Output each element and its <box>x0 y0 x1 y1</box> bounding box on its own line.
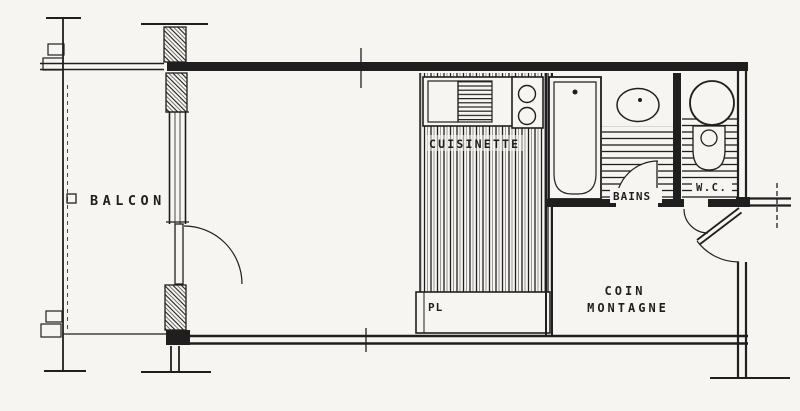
bathtub <box>549 77 601 199</box>
wall-pillar <box>164 27 186 62</box>
kitchenette: CUISINETTE PL <box>416 73 553 333</box>
washbasin <box>617 89 659 122</box>
washbasin-drain <box>638 98 642 102</box>
floor-plan-sheet: BALCON <box>0 0 800 411</box>
balcony-label: BALCON <box>90 193 166 209</box>
toilet <box>693 126 725 170</box>
bathroom-south-wall <box>545 199 616 207</box>
mountain-corner-label-line1: COIN <box>605 284 646 298</box>
wall-pillar <box>165 285 186 330</box>
water-heater <box>690 81 734 125</box>
floor-plan-canvas: BALCON <box>0 0 800 411</box>
closet-label: PL <box>428 301 443 314</box>
wc-west-wall <box>673 73 681 199</box>
balcony-door-leaf <box>175 224 183 284</box>
bathroom-label: BAINS <box>613 190 651 203</box>
wall-junction <box>736 197 750 207</box>
wc-room: W.C. <box>682 81 738 199</box>
north-wall <box>167 62 748 71</box>
wc-south-wall <box>708 199 737 207</box>
toilet-flush <box>701 130 717 146</box>
kitchen-drainer <box>458 81 492 122</box>
stove-burner <box>519 86 536 103</box>
kitchen-sink <box>428 81 458 122</box>
bathtub-drain <box>573 90 578 95</box>
kitchenette-label: CUISINETTE <box>429 137 520 151</box>
wall-pillar <box>166 73 187 112</box>
stove-burner <box>519 108 536 125</box>
mountain-corner-label-line2: MONTAGNE <box>587 301 669 315</box>
wc-label: W.C. <box>696 182 727 194</box>
